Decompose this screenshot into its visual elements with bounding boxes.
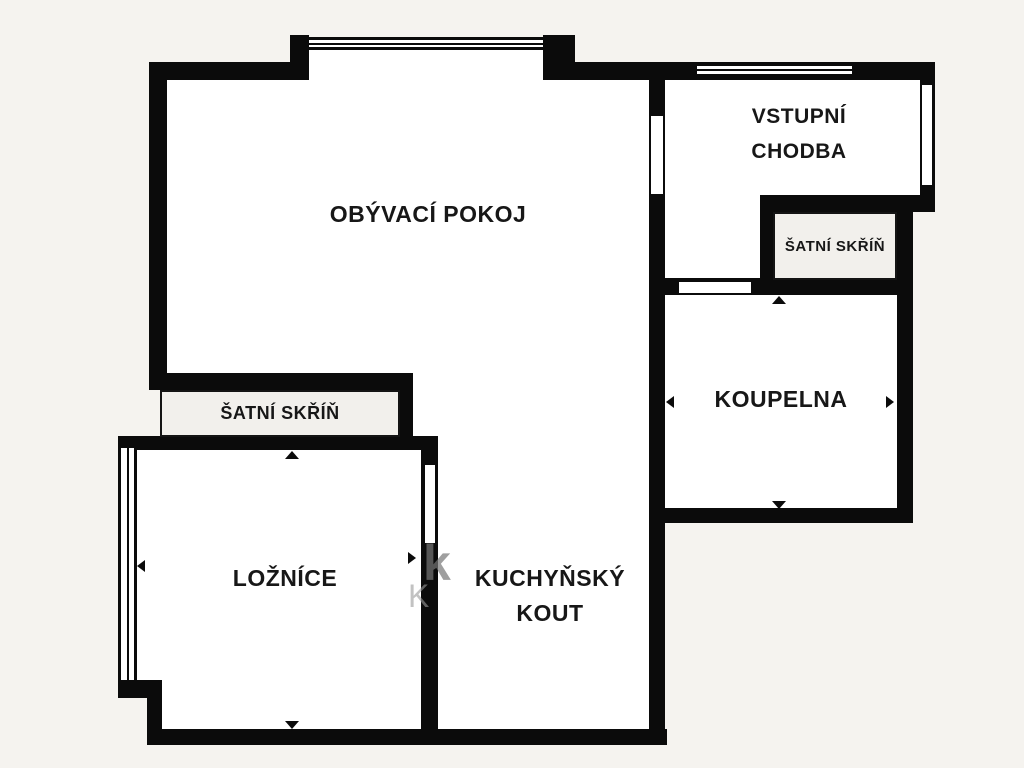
wall-segment <box>398 373 413 437</box>
window-icon-bedroom-left <box>118 448 137 680</box>
room-kitchen-label-line1: KUCHYŇSKÝ <box>440 561 660 596</box>
dimension-arrow-right-icon <box>408 552 416 564</box>
closet-left-label: ŠATNÍ SKŘÍŇ <box>220 403 339 424</box>
wall-segment <box>760 195 935 212</box>
wall-segment <box>118 436 437 450</box>
room-bedroom-label: LOŽNÍCE <box>175 565 395 592</box>
room-hall-label-line1: VSTUPNÍ <box>699 99 899 134</box>
room-living-label: OBÝVACÍ POKOJ <box>278 201 578 228</box>
closet-right-box: ŠATNÍ SKŘÍŇ <box>773 212 897 280</box>
door-opening-living-hall <box>649 114 665 196</box>
dimension-arrow-down-icon <box>285 721 299 729</box>
room-kitchen-label: KUCHYŇSKÝ KOUT <box>440 561 660 631</box>
exterior-patch <box>118 698 147 745</box>
wall-segment <box>897 212 913 523</box>
wall-segment <box>149 373 413 390</box>
wall-segment <box>147 729 667 745</box>
wall-segment <box>149 62 309 80</box>
closet-left-box: ŠATNÍ SKŘÍŇ <box>160 390 400 437</box>
wall-segment <box>149 62 167 377</box>
floor-plan: ŠATNÍ SKŘÍŇ ŠATNÍ SKŘÍŇ OBÝVACÍ POKOJ VS… <box>0 0 1024 768</box>
wall-segment <box>649 508 913 523</box>
dimension-arrow-right-icon <box>886 396 894 408</box>
room-hall-label: VSTUPNÍ CHODBA <box>699 99 899 169</box>
watermark-fragment: K <box>408 580 429 612</box>
wall-segment <box>118 680 162 698</box>
dimension-arrow-up-icon <box>772 296 786 304</box>
room-hall-label-line2: CHODBA <box>699 134 899 169</box>
dimension-arrow-left-icon <box>137 560 145 572</box>
dimension-arrow-left-icon <box>666 396 674 408</box>
window-icon-hall-right <box>920 83 934 187</box>
door-opening-bathroom <box>677 280 753 295</box>
closet-right-label: ŠATNÍ SKŘÍŇ <box>785 238 885 255</box>
window-icon-living-top <box>309 37 543 50</box>
door-opening-bedroom <box>423 463 437 545</box>
room-corridor-fill <box>665 193 760 278</box>
dimension-arrow-up-icon <box>285 451 299 459</box>
dimension-arrow-down-icon <box>772 501 786 509</box>
wall-segment <box>543 62 665 80</box>
window-icon-hall-top <box>697 63 852 77</box>
room-bathroom-label: KOUPELNA <box>671 386 891 413</box>
room-kitchen-label-line2: KOUT <box>440 596 660 631</box>
wall-segment <box>290 35 309 80</box>
